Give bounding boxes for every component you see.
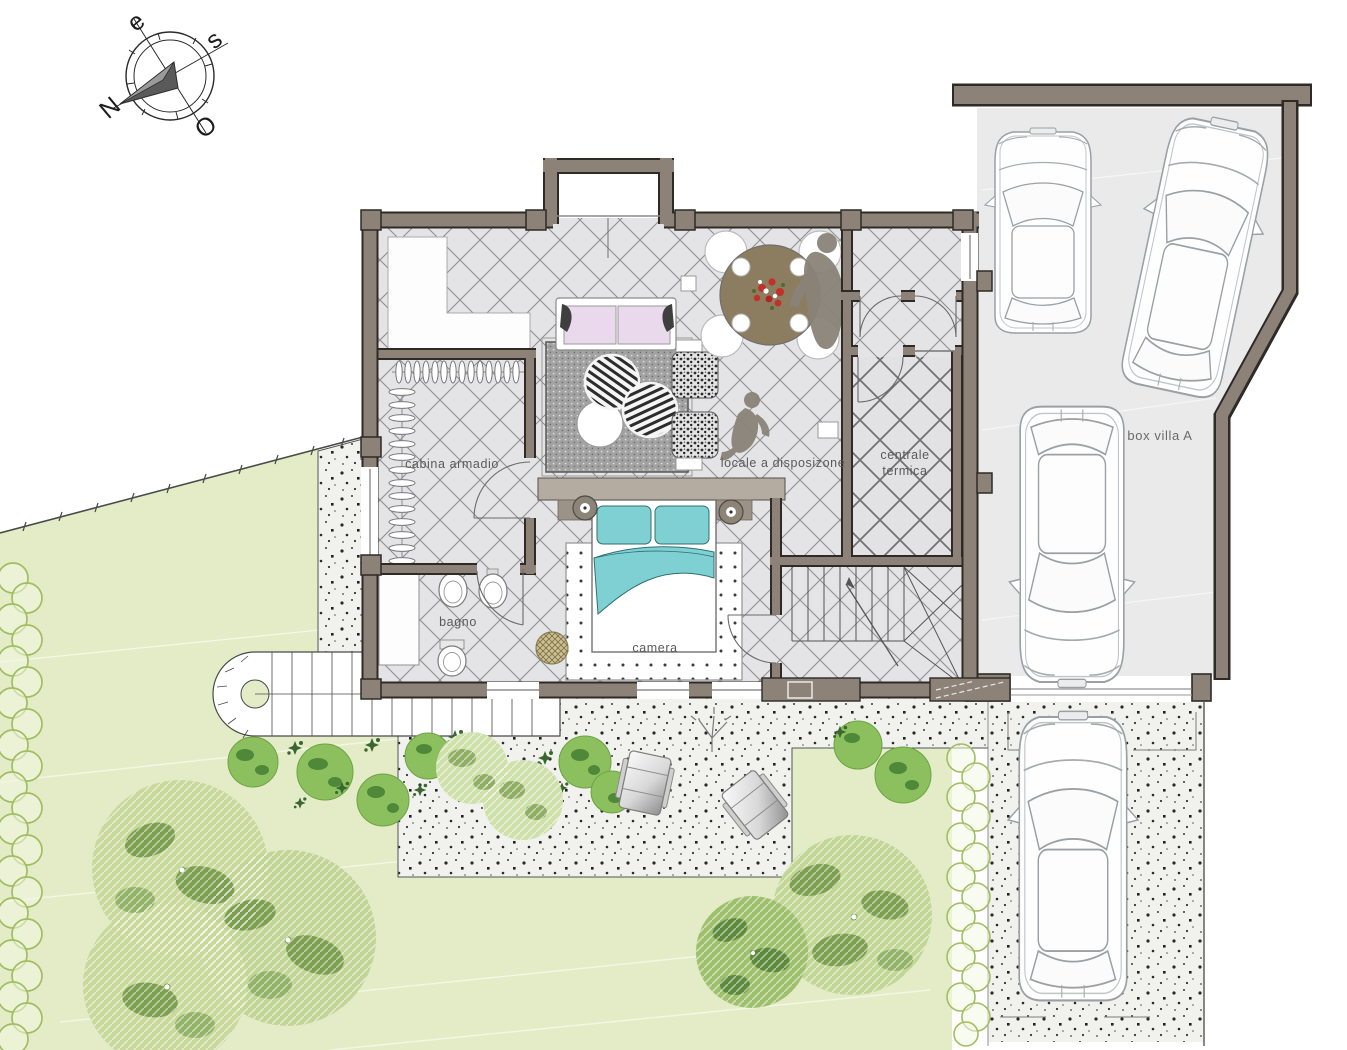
label-centrale-2: termica (882, 464, 927, 478)
label-cabina-armadio: cabina armadio (405, 457, 499, 471)
car-4 (1008, 711, 1138, 1000)
toilet (438, 640, 466, 676)
wall-niche (818, 422, 838, 438)
car-1 (985, 128, 1101, 333)
label-centrale-1: centrale (880, 448, 929, 462)
floor-plan-page: box villa A (0, 0, 1347, 1050)
floor-plan-drawing: box villa A (0, 0, 1347, 1050)
label-bagno: bagno (439, 615, 477, 629)
house: cabina armadio bagno camera locale a dis… (361, 158, 1010, 701)
label-locale: locale a disposizone (721, 456, 846, 470)
bed-head-wall (538, 478, 785, 500)
pouf-2 (623, 383, 677, 437)
vanity (379, 570, 419, 665)
label-box-villa: box villa A (1127, 428, 1192, 443)
label-camera: camera (632, 641, 677, 655)
pillow-1 (597, 506, 651, 544)
sofa (556, 298, 676, 350)
pillow-2 (655, 506, 709, 544)
car-3 (1009, 407, 1134, 688)
gravel-strip (318, 439, 363, 657)
floor-box (681, 276, 696, 291)
sun-lounger-1 (614, 749, 677, 817)
